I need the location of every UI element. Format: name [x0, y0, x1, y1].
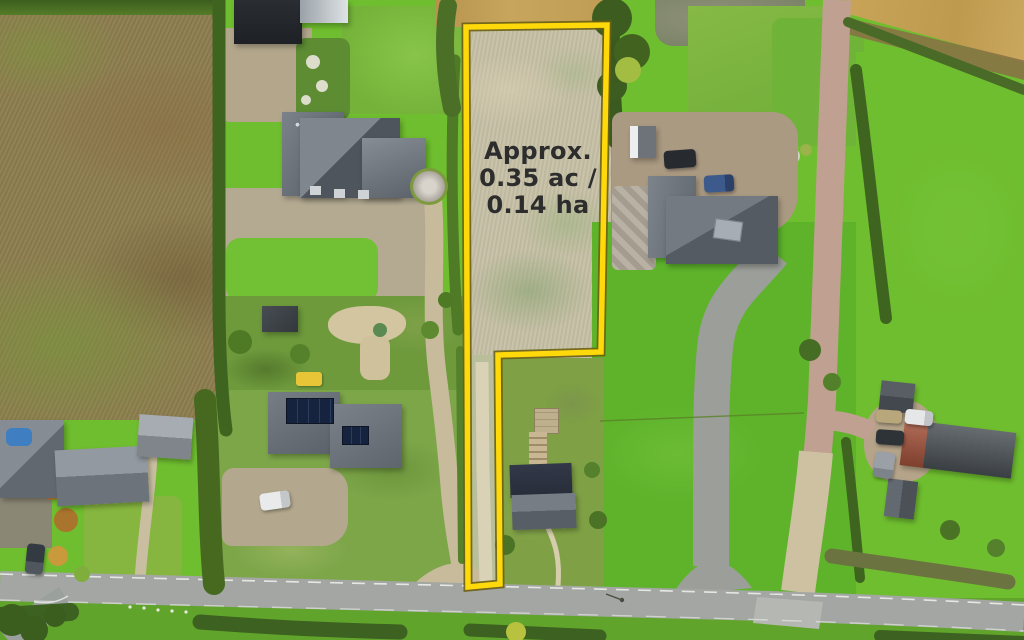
aerial-photo: Approx. 0.35 ac / 0.14 ha: [0, 0, 1024, 640]
plot-area-label-line2: 0.35 ac /: [460, 165, 616, 192]
plot-area-label: Approx. 0.35 ac / 0.14 ha: [460, 138, 616, 219]
plot-area-label-line1: Approx.: [460, 138, 616, 165]
plot-boundary-line: [466, 25, 607, 587]
plot-area-label-line3: 0.14 ha: [460, 192, 616, 219]
plot-boundary-outline: [466, 25, 607, 587]
plot-boundary-layer: [0, 0, 1024, 640]
